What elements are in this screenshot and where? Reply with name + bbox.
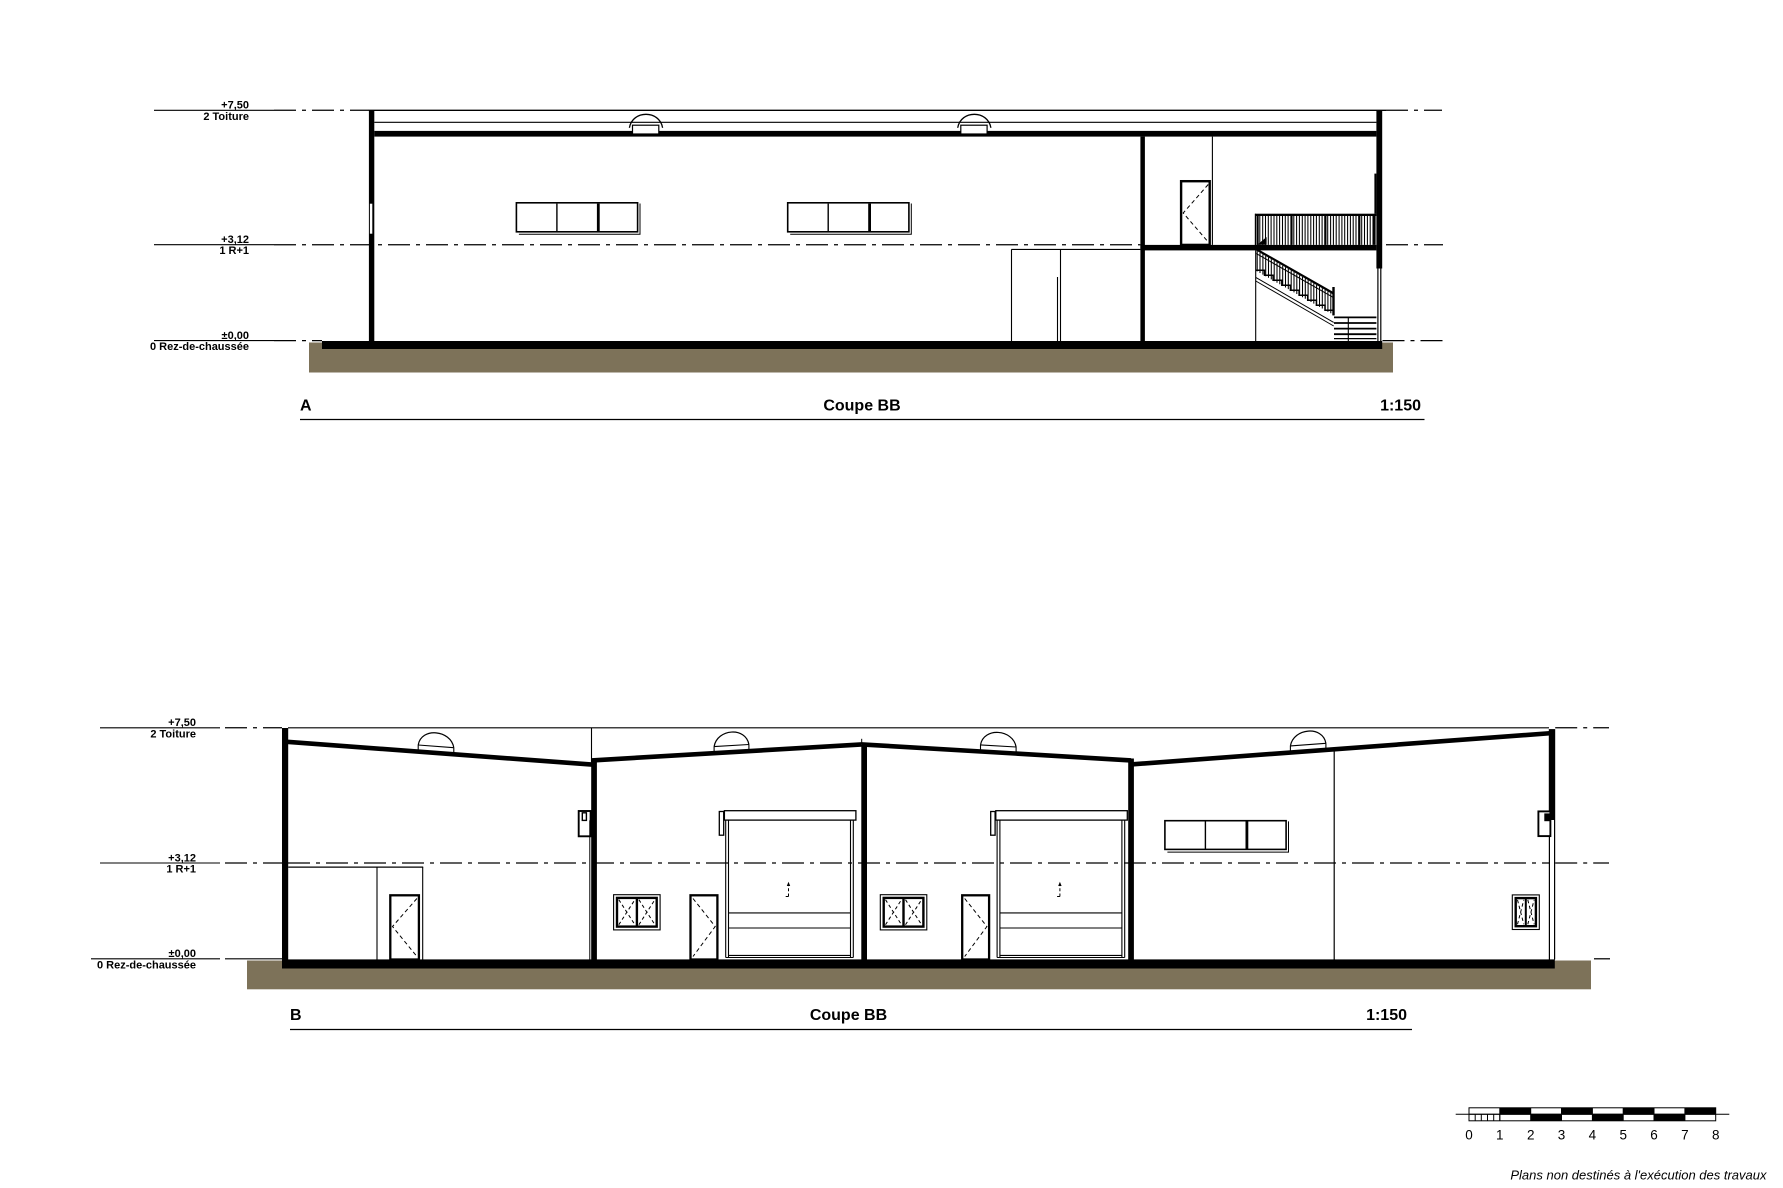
svg-text:6: 6	[1650, 1128, 1658, 1143]
svg-text:±0,00: ±0,00	[222, 330, 249, 342]
svg-text:2 Toiture: 2 Toiture	[203, 111, 249, 123]
svg-text:1 R+1: 1 R+1	[166, 864, 196, 876]
svg-text:1:150: 1:150	[1380, 398, 1421, 415]
svg-text:+3,12: +3,12	[168, 852, 196, 864]
svg-text:Plans non destinés à l'exécuti: Plans non destinés à l'exécution des tra…	[1510, 1168, 1767, 1183]
svg-text:0 Rez-de-chaussée: 0 Rez-de-chaussée	[150, 341, 249, 353]
svg-text:+7,50: +7,50	[221, 100, 249, 112]
svg-text:2 Toiture: 2 Toiture	[150, 728, 196, 740]
svg-text:±0,00: ±0,00	[169, 948, 196, 960]
svg-text:3: 3	[1558, 1128, 1566, 1143]
svg-text:+3,12: +3,12	[221, 234, 249, 246]
svg-text:1:150: 1:150	[1366, 1007, 1407, 1024]
svg-text:1 R+1: 1 R+1	[219, 245, 249, 257]
svg-text:0: 0	[1465, 1128, 1473, 1143]
svg-text:Coupe BB: Coupe BB	[810, 1007, 887, 1024]
svg-text:5: 5	[1619, 1128, 1627, 1143]
svg-text:A: A	[300, 398, 312, 415]
svg-text:8: 8	[1712, 1128, 1720, 1143]
svg-text:4: 4	[1589, 1128, 1597, 1143]
svg-text:0 Rez-de-chaussée: 0 Rez-de-chaussée	[97, 959, 196, 971]
svg-text:2: 2	[1527, 1128, 1535, 1143]
svg-text:B: B	[290, 1007, 302, 1024]
svg-text:Coupe BB: Coupe BB	[823, 398, 900, 415]
svg-text:+7,50: +7,50	[168, 717, 196, 729]
svg-text:7: 7	[1681, 1128, 1689, 1143]
svg-text:1: 1	[1496, 1128, 1504, 1143]
